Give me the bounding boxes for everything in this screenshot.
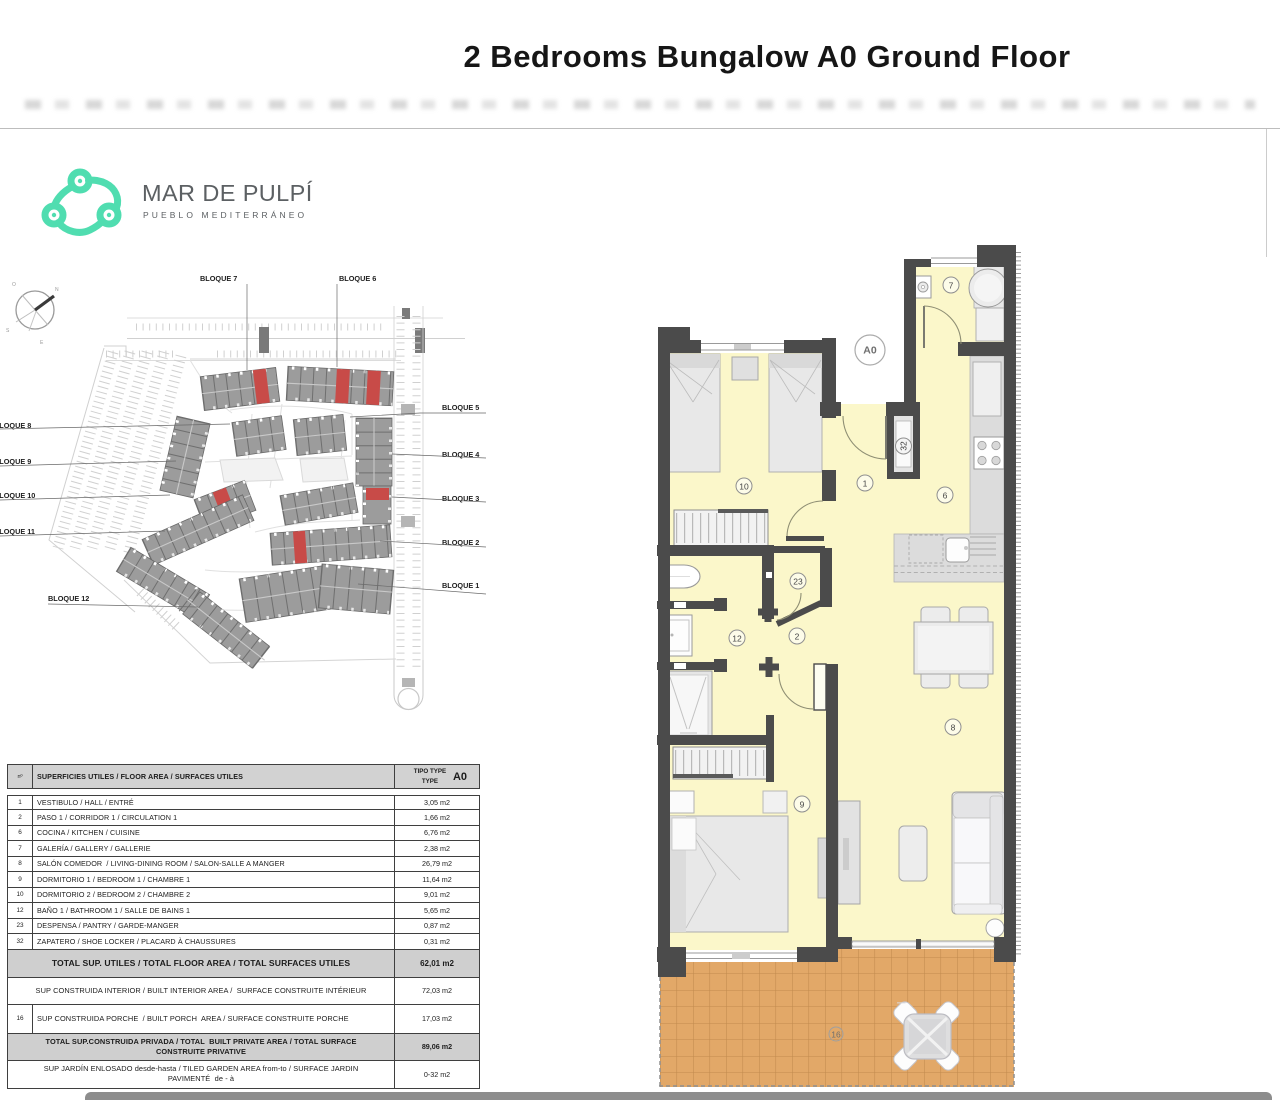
svg-text:BLOQUE 11: BLOQUE 11 [0,527,35,536]
svg-text:6: 6 [943,491,948,501]
svg-text:7: 7 [949,281,954,291]
svg-text:10: 10 [739,482,749,492]
svg-text:A0: A0 [863,345,877,357]
svg-text:23: 23 [793,577,803,587]
svg-text:9: 9 [800,800,805,810]
svg-text:O: O [12,282,16,288]
svg-text:BLOQUE 12: BLOQUE 12 [48,594,89,603]
svg-text:BLOQUE 9: BLOQUE 9 [0,457,31,466]
svg-text:BLOQUE 5: BLOQUE 5 [442,403,479,412]
svg-text:S: S [6,328,10,334]
svg-text:MAR DE PULPÍ: MAR DE PULPÍ [142,180,313,206]
svg-text:1: 1 [863,479,868,489]
svg-text:BLOQUE 7: BLOQUE 7 [200,274,237,283]
svg-text:BLOQUE 1: BLOQUE 1 [442,581,479,590]
svg-text:BLOQUE 10: BLOQUE 10 [0,491,35,500]
svg-text:PUEBLO MEDITERRÁNEO: PUEBLO MEDITERRÁNEO [143,210,307,220]
svg-text:32: 32 [899,441,909,451]
svg-text:12: 12 [732,634,742,644]
svg-text:2: 2 [795,632,800,642]
svg-text:16: 16 [831,1030,841,1040]
svg-text:E: E [40,340,44,346]
svg-text:8: 8 [951,723,956,733]
svg-text:BLOQUE 6: BLOQUE 6 [339,274,376,283]
svg-text:N: N [55,287,59,293]
